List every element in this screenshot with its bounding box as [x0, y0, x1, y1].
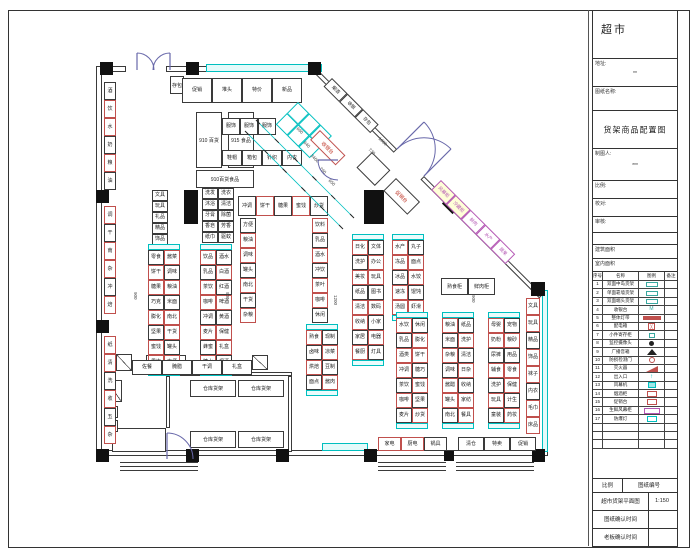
area1-label: 建筑面积 [595, 246, 615, 253]
structural-column [96, 190, 109, 203]
fixture-box: 910百货食品 [196, 170, 254, 188]
legend-cell [665, 365, 677, 372]
shelf-cell: 休闲 [312, 308, 328, 323]
scale-label: 比例: [595, 182, 606, 189]
shelf-cell: 炒货 [412, 408, 428, 423]
shelf-cell: 豆制 [322, 360, 338, 375]
legend-symbol-rcirc [639, 357, 665, 364]
shelf-cell: 清洁 [458, 348, 474, 363]
legend-cell [665, 382, 677, 389]
shelf-cell: 礼盒 [222, 360, 252, 375]
title-block-empty [593, 233, 677, 245]
legend-row [593, 432, 677, 440]
address-label: 地址: [595, 60, 606, 67]
legend-cell [665, 373, 677, 380]
fixture-box: 熟食柜 [441, 278, 468, 295]
shelf-cell: 麦片 [200, 325, 216, 340]
shelf-cell: 茶饮 [396, 378, 412, 393]
legend-name: 风幕机 [603, 382, 639, 389]
dimension-tick [301, 187, 305, 191]
wall [166, 376, 170, 428]
shelf-cell: 新品 [272, 78, 302, 103]
title-block-maker: 制图人: *** [593, 149, 677, 181]
shelf-cell: 水产 [392, 240, 408, 255]
shelf-cell: 冲调 [396, 363, 412, 378]
fixture-box: 910 百货 [196, 112, 222, 168]
legend-row: 14烟酒柜 [593, 390, 677, 398]
legend-row: 1双面中岛货架 [593, 281, 677, 289]
shelf-cell: 面点 [306, 375, 322, 390]
shelf-cell: 服饰 [222, 118, 240, 135]
glass-wall [206, 64, 322, 72]
shelf-cell: 日杂 [458, 363, 474, 378]
diagonal-fixture [356, 152, 390, 186]
legend-symbol-mrect [639, 407, 665, 414]
shelf-cell: 膨化 [412, 333, 428, 348]
shelf-cell: 用品 [504, 348, 520, 363]
wall-pillar [364, 190, 384, 224]
shelf-cell: 速冻 [392, 285, 408, 300]
shelf-cell: 方便 [240, 218, 256, 233]
diagonal-shelf-run: 风幕柜冷藏柜鲜肉水产蔬果 [431, 180, 515, 264]
shelf-cell: 保健 [216, 325, 232, 340]
structural-column [531, 282, 545, 296]
fixture-box: 仓库货架 [238, 431, 284, 448]
shelf-cell: 保健 [504, 378, 520, 393]
shelf-cell: 茶叶 [312, 278, 328, 293]
shelf-cell: 清洁 [218, 199, 234, 210]
title-footer-row: 老板确认时间 [593, 529, 677, 547]
shelf-cell: 茶饮 [200, 280, 216, 295]
shelf-cell: 冲调 [238, 196, 256, 216]
proof-label: 校对: [595, 200, 606, 207]
diagonal-fixture: 促销台 [383, 178, 420, 215]
shelf-cell: 水 [104, 118, 116, 136]
shelf-cell: 饼干 [256, 196, 274, 216]
shelf-cell: 粮油 [442, 318, 458, 333]
structural-column [100, 62, 113, 75]
entry-step-line [120, 470, 198, 471]
corner-shelf [252, 355, 268, 370]
entry-step-line [120, 462, 198, 463]
shelf-cell: 厨电 [401, 437, 424, 451]
shelf-cell: 饮品 [200, 250, 216, 265]
shelf-cell: 调味 [240, 248, 256, 263]
shelf-cell: 奶粉 [488, 333, 504, 348]
shelf-endcap [396, 423, 428, 429]
shelf-cell: 米面 [442, 333, 458, 348]
shelf-cell: 洗 [104, 372, 116, 390]
maker-value: *** [632, 163, 638, 169]
title-block-spacer [593, 449, 677, 479]
dimension-tick [350, 214, 354, 218]
legend-row [593, 424, 677, 432]
shelf-cell: 宠物 [504, 318, 520, 333]
legend-row: 15促销台 [593, 398, 677, 406]
shelf-cell: 糖果 [148, 280, 164, 295]
legend-name: 配电箱 [603, 323, 639, 330]
legend-cell: 17 [593, 415, 603, 422]
legend-cell [665, 323, 677, 330]
shelf-cell: 沐浴 [202, 199, 218, 210]
shelf-cell: 文具 [152, 190, 168, 201]
maker-label: 制图人: [595, 150, 611, 157]
shelf-cell: 饮料 [312, 218, 328, 233]
legend-table: 序号名称图例备注1双面中岛货架2单面靠墙货架3双面端头货架4收银台M5整体灯带6… [593, 272, 677, 449]
shelf-cell: 坚果 [148, 325, 164, 340]
legend-header-cell: 备注 [665, 272, 677, 280]
legend-header-cell: 名称 [603, 272, 639, 280]
legend-cell: 12 [593, 373, 603, 380]
dimension-text: 1200 [333, 295, 338, 305]
legend-name: 单面靠墙货架 [603, 289, 639, 296]
legend-row: 9广播音箱 [593, 348, 677, 356]
shelf-cell: 罐头 [240, 263, 256, 278]
door-swing-arc [137, 53, 154, 70]
shelf-cell: 调味 [442, 363, 458, 378]
shelf-cell: 干 [104, 224, 116, 242]
shelf-cell: 调 [104, 206, 116, 224]
legend-cell: 1 [593, 281, 603, 288]
shelf-cell: 锅具 [424, 437, 447, 451]
shelf-cell: 牙膏 [202, 210, 218, 221]
legend-cell [665, 390, 677, 397]
shelf-cell: 咖啡 [312, 293, 328, 308]
door-leaf [397, 122, 424, 149]
legend-cell [665, 357, 677, 364]
shelf-cell: 糖果 [274, 196, 292, 216]
legend-name: 促销台 [603, 398, 639, 405]
legend-name: 双面端头货架 [603, 298, 639, 305]
shelf-cell: 文具 [526, 298, 540, 315]
legend-row: 8监控摄像头 [593, 340, 677, 348]
shelf-cell: 玩具 [368, 270, 384, 285]
shelf-cell: 酒水 [216, 250, 232, 265]
shelf-cell: 内衣 [282, 150, 302, 166]
shelf-cell: 洗衣 [218, 188, 234, 199]
structural-column [186, 449, 199, 462]
shelf-cell: 洗护 [458, 333, 474, 348]
shelf-cell: 蜂蜜 [200, 340, 216, 355]
legend-cell [593, 432, 603, 439]
shelf-cell: 服饰 [240, 118, 258, 135]
shelf-cell: 特卖 [484, 437, 510, 451]
legend-cell [665, 289, 677, 296]
entry-step-line [456, 466, 534, 467]
shelf-cell: 杂 [104, 260, 116, 278]
shelf-cell: 收纳 [458, 378, 474, 393]
project-title: 超市 [601, 21, 627, 37]
glass-wall [542, 290, 548, 452]
shelf-cell: 纸品 [352, 285, 368, 300]
legend-row [593, 440, 677, 448]
legend-symbol-rflag [639, 365, 665, 372]
shelf-cell: 玩具 [488, 393, 504, 408]
shelf-cell: 精品 [526, 332, 540, 349]
legend-row: 16生鲜风幕柜 [593, 407, 677, 415]
shelf-cell: 油 [104, 172, 116, 190]
shelf-cell: 美妆 [352, 270, 368, 285]
floor-plan: 910 百货915 食品910百货食品存包仓库货架仓库货架仓库货架仓库货架熟食柜… [0, 0, 590, 555]
shelf-cell: 咖啡 [200, 295, 216, 310]
title-block-drawing-name: 图纸名称: [593, 87, 677, 111]
shelf-cell: 南北 [240, 278, 256, 293]
shelf-cell: 蜜饯 [148, 340, 164, 355]
shelf-cell: 麦片 [396, 408, 412, 423]
shelf-cell: 冲 [104, 278, 116, 296]
legend-name: 监控摄像头 [603, 340, 639, 347]
legend-symbol-none [639, 440, 665, 447]
legend-symbol-tword: M [639, 306, 665, 313]
shelf-cell: 佐餐 [132, 360, 162, 375]
legend-symbol-rbar [639, 315, 665, 322]
legend-cell: 8 [593, 340, 603, 347]
legend-cell: 5 [593, 315, 603, 322]
legend-cell: 10 [593, 357, 603, 364]
legend-symbol-trect [639, 298, 665, 305]
dimension-tick [275, 139, 279, 143]
legend-cell [665, 340, 677, 347]
shelf-cell: 南 [104, 242, 116, 260]
legend-cell [665, 306, 677, 313]
shelf-cell: 蜜饯 [412, 378, 428, 393]
legend-cell: 6 [593, 323, 603, 330]
legend-cell [665, 398, 677, 405]
title-footer-cell: 图纸确认时间 [593, 511, 649, 528]
title-footer-cell [649, 529, 675, 546]
shelf-cell: 母婴 [488, 318, 504, 333]
shelf-cell: 精品 [152, 223, 168, 234]
legend-cell [665, 424, 677, 431]
shelf-cell: 饼干 [412, 348, 428, 363]
shelf-cell: 南北 [442, 408, 458, 423]
shelf-cell: 米面 [164, 295, 180, 310]
legend-symbol-trect [639, 281, 665, 288]
dimension-tick [331, 195, 335, 199]
legend-cell [665, 432, 677, 439]
shelf-cell: 零食 [504, 363, 520, 378]
shelf-cell: 冻品 [392, 255, 408, 270]
shelf-cell: 图书 [368, 285, 384, 300]
shelf-cell: 酱醋 [442, 378, 458, 393]
glass-wall [322, 443, 368, 451]
shelf-cell: 丸子 [408, 240, 424, 255]
drawing-title: 货架商品配置图 [604, 124, 667, 135]
legend-name: 整体灯带 [603, 315, 639, 322]
shelf-cell: 计生 [504, 393, 520, 408]
shelf-cell: 南北 [164, 310, 180, 325]
legend-cell [593, 440, 603, 447]
area2-label: 室内面积 [595, 260, 615, 267]
shelf-cell: 礼盒 [216, 340, 232, 355]
shelf-cell: 粮 [104, 154, 116, 172]
wall [96, 66, 102, 462]
shelf-cell: 针织 [262, 150, 282, 166]
shelf-cell: 水饺 [408, 270, 424, 285]
shelf-cell: 腌腊 [162, 360, 192, 375]
legend-name: 防爆灯 [603, 415, 639, 422]
structural-column [186, 62, 199, 75]
shelf-cell: 洗护 [352, 255, 368, 270]
shelf-cell: 膨化 [148, 310, 164, 325]
title-footer-cell: 比例 [593, 479, 623, 492]
legend-cell [665, 348, 677, 355]
legend-row: 11灭火器 [593, 365, 677, 373]
shelf-cell: 卤味 [306, 345, 322, 360]
shelf-cell: 凉菜 [322, 345, 338, 360]
title-footer-cell: 超市货架平面图 [593, 493, 649, 510]
structural-column [96, 320, 109, 333]
shelf-cell: 馄饨 [408, 285, 424, 300]
shelf-cell: 粮油 [240, 233, 256, 248]
wall [288, 376, 292, 452]
shelf-cell: 咖啡 [396, 393, 412, 408]
title-block-main-title: 货架商品配置图 [593, 111, 677, 149]
dimension-text: 760 [318, 166, 327, 175]
legend-name: 收银台 [603, 306, 639, 313]
shelf-cell: 驱蚊 [218, 232, 234, 243]
shelf-cell: 文体 [368, 240, 384, 255]
shelf-cell: 内衣 [526, 383, 540, 400]
entry-step-line [456, 470, 534, 471]
legend-cell [665, 281, 677, 288]
structural-column [364, 449, 377, 462]
fixture-box: 鲜肉柜 [468, 278, 495, 295]
entry-step-line [456, 462, 534, 463]
shelf-cell: 冲饮 [312, 263, 328, 278]
legend-cell [665, 315, 677, 322]
shelf-cell: 家纺 [458, 393, 474, 408]
diagonal-shelf-run: 烟酒收银存包 [324, 78, 379, 133]
shelf-cell: 零食 [148, 250, 164, 265]
shelf-cell: 家电 [378, 437, 401, 451]
legend-row: 7小件寄存柜 [593, 331, 677, 339]
shelf-cell: 除菌 [218, 210, 234, 221]
title-footer-row: 图纸确认时间 [593, 511, 677, 529]
legend-symbol-cfill [639, 382, 665, 389]
drawing-name-label: 图纸名称: [595, 88, 616, 95]
legend-cell: 3 [593, 298, 603, 305]
shelf-cell: 清洁 [352, 300, 368, 315]
legend-cell: 7 [593, 331, 603, 338]
dimension-text: 900 [225, 292, 230, 300]
shelf-cell: 酱肉 [322, 375, 338, 390]
legend-cell: 16 [593, 407, 603, 414]
entry-step-line [378, 466, 446, 467]
shelf-cell: 袜子 [526, 366, 540, 383]
title-footer-row: 比例图纸编号 [593, 479, 677, 493]
shelf-cell: 玩具 [152, 201, 168, 212]
shelf-cell: 餐具 [458, 408, 474, 423]
structural-column [308, 62, 321, 75]
legend-symbol-dot [639, 340, 665, 347]
shelf-cell: 堆头 [212, 78, 242, 103]
shelf-cell: 日化 [352, 240, 368, 255]
wall [112, 428, 166, 452]
shelf-cell: 饮 [104, 100, 116, 118]
legend-name [603, 424, 639, 431]
title-block-area2: 室内面积 [593, 259, 677, 272]
legend-cell [593, 424, 603, 431]
shelf-cell: 饰品 [526, 349, 540, 366]
legend-symbol-rgrid: ╳ [639, 323, 665, 330]
title-block-area1: 建筑面积 [593, 245, 677, 259]
legend-cell [665, 298, 677, 305]
legend-name: 防损检测门 [603, 357, 639, 364]
shelf-endcap [488, 423, 520, 429]
shelf-cell: 粮油 [164, 280, 180, 295]
legend-cell: 15 [593, 398, 603, 405]
shelf-cell: 餐厨 [352, 345, 368, 360]
door-swing-arc [397, 138, 451, 149]
legend-symbol-none [639, 424, 665, 431]
legend-name: 广播音箱 [603, 348, 639, 355]
shelf-cell: 香皂 [202, 221, 218, 232]
title-block-footer: 比例图纸编号超市货架平面图1:150图纸确认时间老板确认时间 [593, 479, 677, 547]
legend-name: 烟酒柜 [603, 390, 639, 397]
legend-name: 生鲜风幕柜 [603, 407, 639, 414]
shelf-cell: 蜜饯 [292, 196, 310, 216]
legend-row: 10防损检测门 [593, 357, 677, 365]
shelf-cell: 办公 [368, 255, 384, 270]
legend-row: 17防爆灯 [593, 415, 677, 423]
legend-row: 3双面端头货架 [593, 298, 677, 306]
dimension-tick [283, 169, 287, 173]
shelf-cell: 罐头 [164, 340, 180, 355]
shelf-cell: 糖巧 [412, 363, 428, 378]
shelf-cell: 药妆 [504, 408, 520, 423]
address-value: ** [633, 71, 637, 77]
legend-cell [665, 331, 677, 338]
shelf-cell: 饼干 [148, 265, 164, 280]
shelf-cell: 小家 [368, 315, 384, 330]
fixture-box: 仓库货架 [190, 431, 236, 448]
audit-label: 审核: [595, 218, 606, 225]
shelf-cell: 五 [104, 408, 116, 426]
legend-symbol-crect [639, 415, 665, 422]
shelf-cell: 芳香 [218, 221, 234, 232]
legend-symbol-tglyph [639, 331, 665, 338]
entry-step-line [378, 462, 446, 463]
legend-cell: 14 [593, 390, 603, 397]
legend-cell [665, 407, 677, 414]
legend-name: 小件寄存柜 [603, 331, 639, 338]
door-swing-arc [424, 122, 435, 176]
shelf-cell: 促销 [510, 437, 536, 451]
shelf-cell: 面点 [408, 255, 424, 270]
shelf-cell: 酒 [104, 82, 116, 100]
shelf-cell: 干货 [164, 325, 180, 340]
legend-symbol-rrect [639, 390, 665, 397]
shelf-cell: 乳品 [312, 233, 328, 248]
title-block: 超市 地址: ** 图纸名称: 货架商品配置图 制图人: *** 比例: 校对:… [592, 10, 678, 548]
shelf-cell: 罐头 [442, 393, 458, 408]
shelf-cell: 调味 [164, 265, 180, 280]
legend-symbol-trect [639, 289, 665, 296]
shelf-cell: 数码 [368, 300, 384, 315]
shelf-cell: 毛巾 [526, 400, 540, 417]
title-block-proof: 校对: [593, 199, 677, 217]
title-footer-cell: 图纸编号 [623, 479, 675, 492]
dimension-tick [339, 225, 343, 229]
shelf-cell: 烘焙 [306, 360, 322, 375]
title-footer-row: 超市货架平面图1:150 [593, 493, 677, 511]
shelf-cell: 特价 [242, 78, 272, 103]
legend-cell [665, 415, 677, 422]
legend-row: 13风幕机 [593, 382, 677, 390]
shelf-cell: 促销 [182, 78, 212, 103]
legend-cell: 4 [593, 306, 603, 313]
